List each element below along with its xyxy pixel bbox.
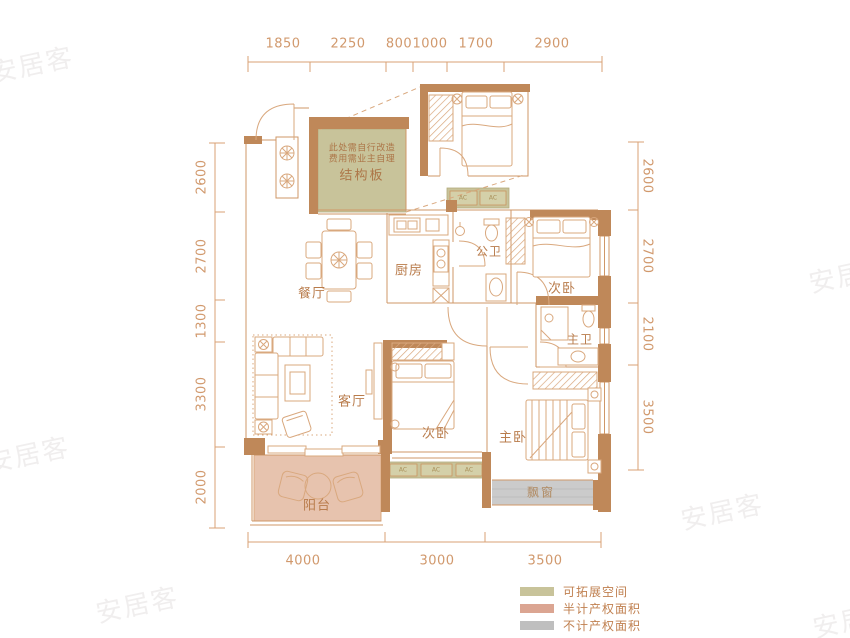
ac-unit-label: AC xyxy=(489,195,497,202)
legend-swatch-pink xyxy=(520,604,554,613)
dimension-label: 1700 xyxy=(458,37,493,52)
ac-unit-label: AC xyxy=(465,467,473,474)
entry-door xyxy=(256,104,294,140)
detail-room xyxy=(420,84,530,176)
dimension-label: 2600 xyxy=(195,159,210,194)
legend-row-half-area: 半计产权面积 xyxy=(520,600,641,617)
dimension-label: 800 xyxy=(386,37,412,52)
dimension-label: 4000 xyxy=(285,554,320,569)
dimension-label: 3000 xyxy=(419,554,454,569)
legend-label: 可拓展空间 xyxy=(563,583,628,600)
dimension-label: 1000 xyxy=(412,37,447,52)
room-label-dining: 餐厅 xyxy=(298,283,326,302)
floorplan-graphic xyxy=(0,0,850,638)
legend-label: 半计产权面积 xyxy=(563,600,641,617)
room-label-master-bath: 主卫 xyxy=(567,331,593,348)
renovation-note-line2: 费用需业主自理 xyxy=(329,152,396,165)
ac-shaft-fans xyxy=(280,146,294,188)
living-room-furniture xyxy=(253,335,382,438)
dimension-label: 2700 xyxy=(195,238,210,273)
legend-row-expandable: 可拓展空间 xyxy=(520,583,628,600)
room-label-master-bedroom: 主卧 xyxy=(499,427,527,446)
dimension-label: 2000 xyxy=(195,469,210,504)
master-bedroom-furniture xyxy=(526,372,601,473)
legend-swatch-green xyxy=(520,587,554,596)
detail-wardrobe xyxy=(429,95,453,141)
dimension-label: 2700 xyxy=(640,238,655,273)
bedroom-top-furniture xyxy=(525,217,599,277)
room-label-bedroom-top: 次卧 xyxy=(548,278,576,297)
windows xyxy=(600,236,609,434)
bedroom-bottom-door xyxy=(448,307,487,346)
room-label-public-bath: 公卫 xyxy=(476,243,502,260)
room-label-structure-slab: 结构板 xyxy=(339,165,384,184)
dimension-label: 3300 xyxy=(195,376,210,411)
hall-wardrobe xyxy=(506,218,525,264)
room-label-bay-window: 飘窗 xyxy=(527,484,555,501)
dimension-label: 3500 xyxy=(527,554,562,569)
ac-unit-label: AC xyxy=(459,195,467,202)
dimension-label: 2600 xyxy=(640,158,655,193)
legend-swatch-gray xyxy=(520,621,554,630)
room-label-balcony: 阳台 xyxy=(303,495,331,514)
public-bath-fixtures xyxy=(456,218,526,301)
ac-unit-label: AC xyxy=(432,467,440,474)
legend-row-no-area: 不计产权面积 xyxy=(520,617,641,634)
dimension-label: 3500 xyxy=(640,399,655,434)
dimension-label: 2100 xyxy=(640,316,655,351)
dimension-label: 1300 xyxy=(195,303,210,338)
tv xyxy=(366,370,372,394)
dimension-label: 2900 xyxy=(534,37,569,52)
dimension-label: 1850 xyxy=(265,37,300,52)
tv-cabinet xyxy=(374,343,382,419)
ac-unit-label: AC xyxy=(399,467,407,474)
room-label-living: 客厅 xyxy=(338,391,366,410)
floorplan-page: 安居客 安居客 安居客 安居客 安居客 安居客 xyxy=(0,0,850,638)
dimension-label: 2250 xyxy=(330,37,365,52)
bedroom-bottom-furniture xyxy=(391,343,454,429)
room-label-bedroom-bottom: 次卧 xyxy=(422,423,450,442)
room-label-kitchen: 厨房 xyxy=(395,260,423,279)
legend-label: 不计产权面积 xyxy=(563,617,641,634)
master-bedroom-door xyxy=(490,347,528,384)
